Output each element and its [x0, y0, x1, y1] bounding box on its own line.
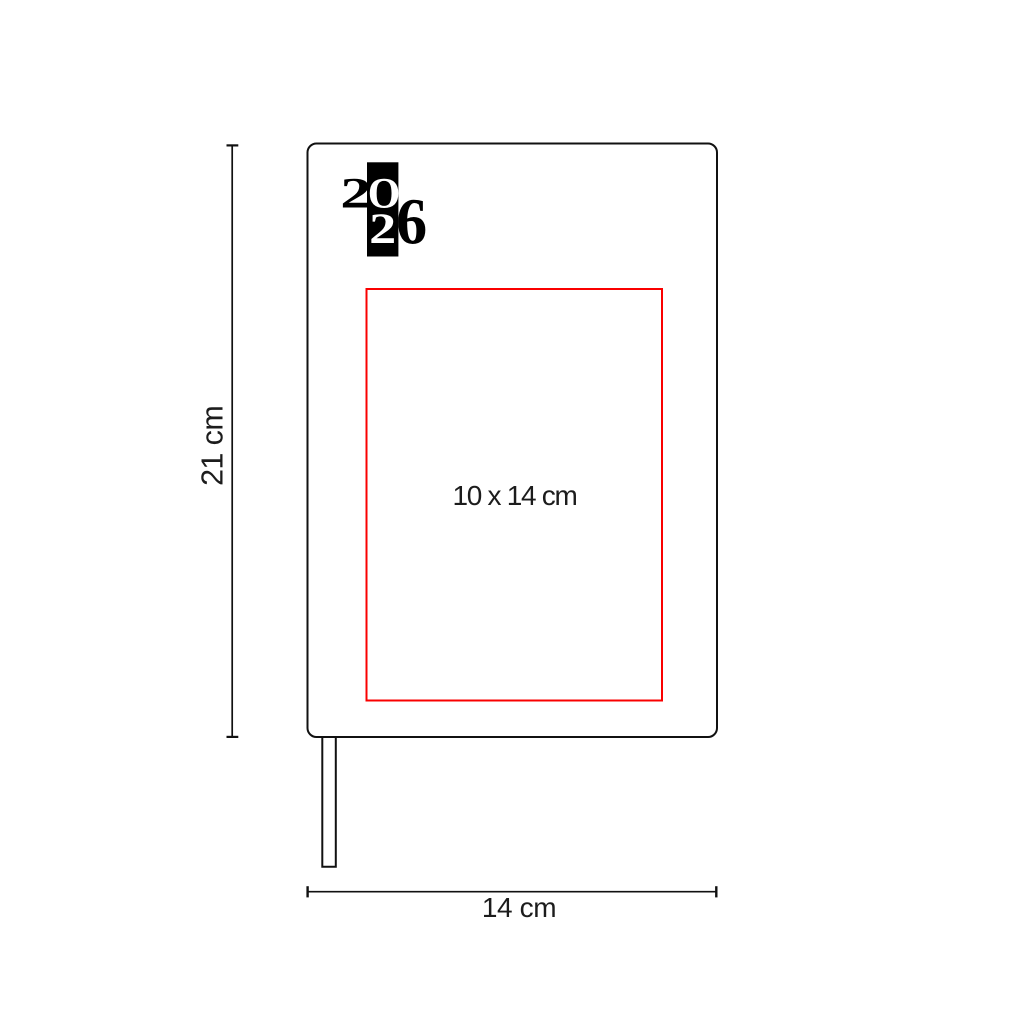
svg-text:14 cm: 14 cm	[482, 892, 556, 923]
svg-text:21 cm: 21 cm	[195, 406, 229, 486]
svg-text:2: 2	[340, 169, 371, 218]
svg-text:10 x 14 cm: 10 x 14 cm	[453, 480, 577, 511]
svg-text:6: 6	[396, 185, 427, 258]
svg-text:2: 2	[369, 204, 396, 253]
